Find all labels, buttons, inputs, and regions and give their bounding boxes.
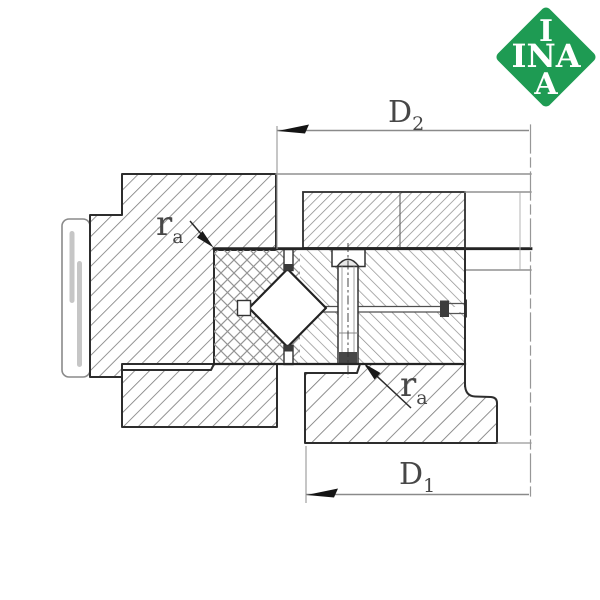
lower-clamp-flange xyxy=(122,364,277,427)
dimension-d1: D1 xyxy=(306,446,529,503)
spacer-block xyxy=(238,301,251,316)
drawing-canvas: D2 D1 ra ra I INA A xyxy=(0,0,600,600)
ina-logo: I INA A xyxy=(494,5,597,108)
d1-label: D1 xyxy=(399,457,435,497)
logo-text-bottom: A xyxy=(533,67,558,102)
top-mounting-plate xyxy=(303,192,465,248)
cage-pin-bottom xyxy=(284,346,293,365)
pilot-highlight xyxy=(77,261,82,367)
shaft-pilot xyxy=(62,219,90,377)
cage-pin-top xyxy=(284,250,293,271)
outer-ring-upper xyxy=(300,249,465,307)
pilot-highlight xyxy=(70,231,75,303)
outer-ring-lower xyxy=(300,312,465,364)
d2-label: D2 xyxy=(388,95,424,135)
d1-arrow-icon xyxy=(307,489,339,498)
technical-drawing: D2 D1 ra ra I INA A xyxy=(0,0,600,600)
d2-arrow-icon xyxy=(278,125,310,134)
